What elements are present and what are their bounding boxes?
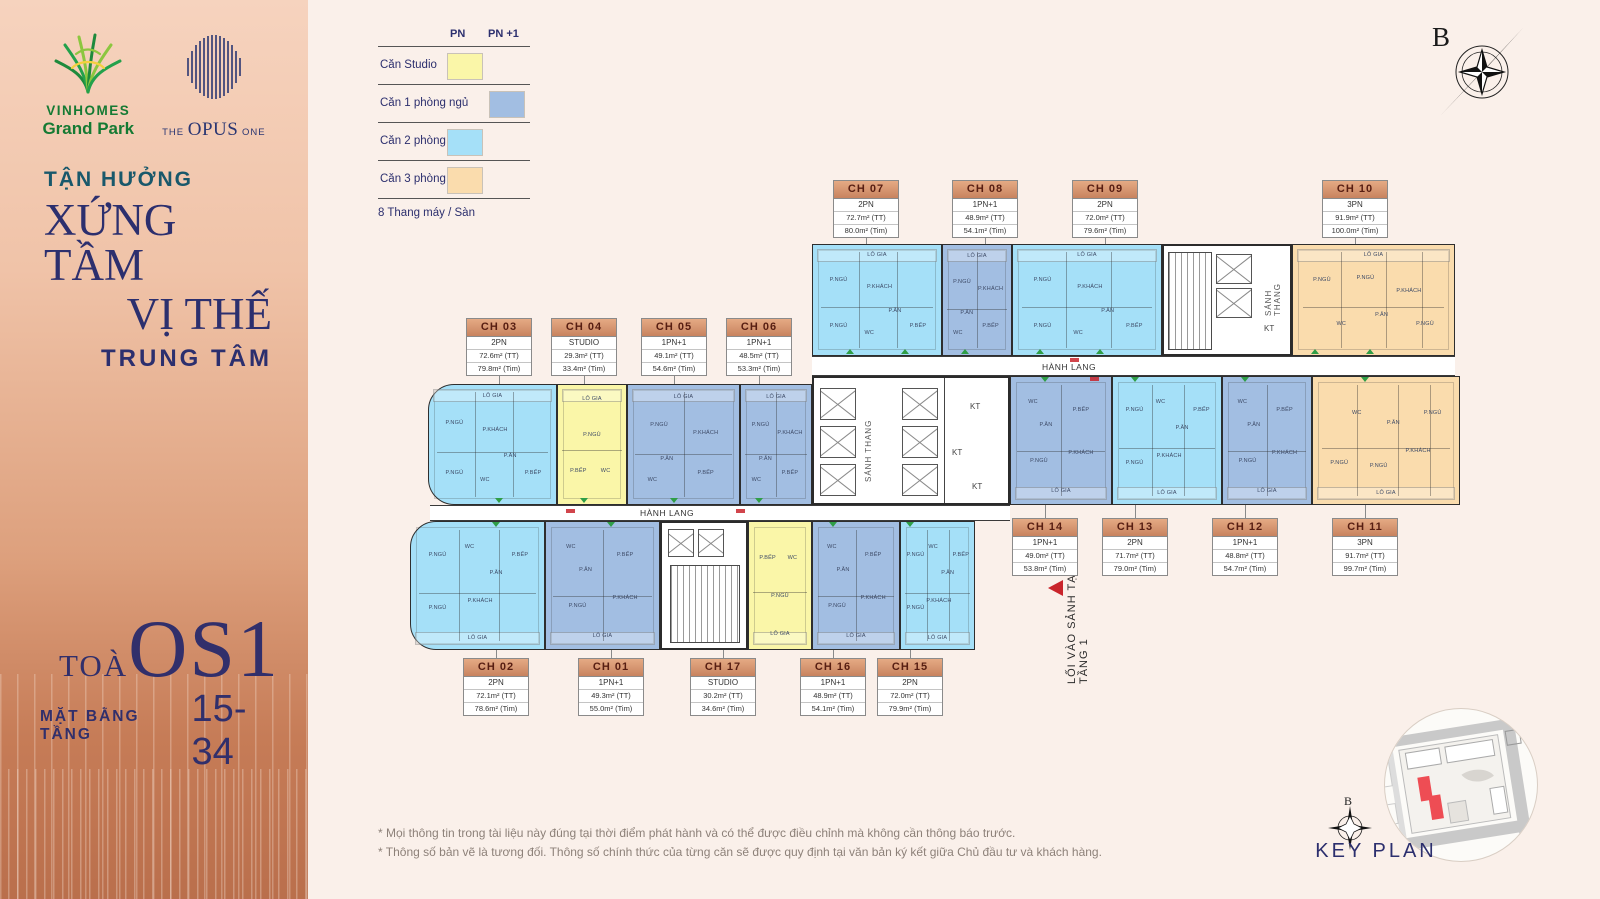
- unit-code: CH 07: [834, 181, 898, 199]
- unit-code: CH 03: [467, 319, 531, 337]
- unit-code: CH 02: [464, 659, 528, 677]
- key-plan-map: [1384, 708, 1538, 862]
- unit-area-tt: 91.9m² (TT): [1323, 212, 1387, 225]
- unit-code: CH 15: [878, 659, 942, 677]
- callout-leader-line: [833, 650, 834, 658]
- unit-type: 1PN+1: [1013, 537, 1077, 550]
- unit-callout-ch-03: CH 032PN72.6m² (TT)79.8m² (Tim): [466, 318, 532, 376]
- unit-area-tim: 79.9m² (Tim): [878, 703, 942, 715]
- unit-type: 1PN+1: [801, 677, 865, 690]
- unit-callout-ch-15: CH 152PN72.0m² (TT)79.9m² (Tim): [877, 658, 943, 716]
- unit-type: 1PN+1: [642, 337, 706, 350]
- unit-type: 2PN: [464, 677, 528, 690]
- unit-type: STUDIO: [691, 677, 755, 690]
- unit-area-tim: 54.6m² (Tim): [642, 363, 706, 375]
- unit-callout-ch-05: CH 051PN+149.1m² (TT)54.6m² (Tim): [641, 318, 707, 376]
- unit-type: 3PN: [1323, 199, 1387, 212]
- unit-callout-ch-01: CH 011PN+149.3m² (TT)55.0m² (Tim): [578, 658, 644, 716]
- callout-leader-line: [1135, 505, 1136, 518]
- unit-callout-ch-12: CH 121PN+148.8m² (TT)54.7m² (Tim): [1212, 518, 1278, 576]
- unit-area-tt: 30.2m² (TT): [691, 690, 755, 703]
- unit-callout-ch-17: CH 17STUDIO30.2m² (TT)34.6m² (Tim): [690, 658, 756, 716]
- unit-callout-ch-11: CH 113PN91.7m² (TT)99.7m² (Tim): [1332, 518, 1398, 576]
- unit-callout-ch-09: CH 092PN72.0m² (TT)79.6m² (Tim): [1072, 180, 1138, 238]
- unit-area-tim: 99.7m² (Tim): [1333, 563, 1397, 575]
- unit-code: CH 04: [552, 319, 616, 337]
- unit-area-tim: 34.6m² (Tim): [691, 703, 755, 715]
- disclaimer: * Mọi thông tin trong tài liệu này đúng …: [378, 824, 1358, 862]
- disclaimer-line-2: * Thông số bản vẽ là tương đối. Thông số…: [378, 843, 1358, 862]
- unit-area-tim: 53.3m² (Tim): [727, 363, 791, 375]
- callout-leader-line: [611, 650, 612, 658]
- unit-code: CH 14: [1013, 519, 1077, 537]
- unit-area-tim: 80.0m² (Tim): [834, 225, 898, 237]
- unit-type: 1PN+1: [1213, 537, 1277, 550]
- unit-area-tt: 48.9m² (TT): [801, 690, 865, 703]
- unit-area-tt: 49.3m² (TT): [579, 690, 643, 703]
- unit-code: CH 01: [579, 659, 643, 677]
- callout-leader-line: [1245, 505, 1246, 518]
- unit-area-tt: 72.6m² (TT): [467, 350, 531, 363]
- unit-area-tim: 53.8m² (Tim): [1013, 563, 1077, 575]
- unit-callout-ch-14: CH 141PN+149.0m² (TT)53.8m² (Tim): [1012, 518, 1078, 576]
- unit-area-tt: 48.8m² (TT): [1213, 550, 1277, 563]
- unit-code: CH 08: [953, 181, 1017, 199]
- unit-type: 1PN+1: [953, 199, 1017, 212]
- unit-area-tim: 79.6m² (Tim): [1073, 225, 1137, 237]
- unit-callout-ch-02: CH 022PN72.1m² (TT)78.6m² (Tim): [463, 658, 529, 716]
- unit-callout-ch-08: CH 081PN+148.9m² (TT)54.1m² (Tim): [952, 180, 1018, 238]
- unit-area-tt: 29.3m² (TT): [552, 350, 616, 363]
- unit-callout-ch-16: CH 161PN+148.9m² (TT)54.1m² (Tim): [800, 658, 866, 716]
- unit-type: 2PN: [1103, 537, 1167, 550]
- unit-type: 2PN: [834, 199, 898, 212]
- unit-callouts: CH 011PN+149.3m² (TT)55.0m² (Tim)CH 022P…: [0, 0, 1600, 899]
- unit-area-tt: 91.7m² (TT): [1333, 550, 1397, 563]
- unit-area-tim: 55.0m² (Tim): [579, 703, 643, 715]
- unit-area-tt: 72.1m² (TT): [464, 690, 528, 703]
- unit-code: CH 12: [1213, 519, 1277, 537]
- callout-leader-line: [1045, 505, 1046, 518]
- unit-area-tt: 71.7m² (TT): [1103, 550, 1167, 563]
- unit-code: CH 05: [642, 319, 706, 337]
- unit-type: 2PN: [1073, 199, 1137, 212]
- unit-area-tim: 79.8m² (Tim): [467, 363, 531, 375]
- disclaimer-line-1: * Mọi thông tin trong tài liệu này đúng …: [378, 824, 1358, 843]
- unit-area-tt: 48.5m² (TT): [727, 350, 791, 363]
- unit-type: 3PN: [1333, 537, 1397, 550]
- unit-area-tim: 54.1m² (Tim): [953, 225, 1017, 237]
- unit-type: 1PN+1: [727, 337, 791, 350]
- unit-area-tt: 72.0m² (TT): [878, 690, 942, 703]
- unit-callout-ch-04: CH 04STUDIO29.3m² (TT)33.4m² (Tim): [551, 318, 617, 376]
- unit-type: STUDIO: [552, 337, 616, 350]
- unit-code: CH 09: [1073, 181, 1137, 199]
- unit-area-tim: 54.1m² (Tim): [801, 703, 865, 715]
- callout-leader-line: [910, 650, 911, 658]
- callout-leader-line: [496, 650, 497, 658]
- unit-type: 2PN: [467, 337, 531, 350]
- unit-callout-ch-10: CH 103PN91.9m² (TT)100.0m² (Tim): [1322, 180, 1388, 238]
- unit-callout-ch-06: CH 061PN+148.5m² (TT)53.3m² (Tim): [726, 318, 792, 376]
- unit-code: CH 10: [1323, 181, 1387, 199]
- unit-area-tim: 78.6m² (Tim): [464, 703, 528, 715]
- unit-area-tt: 49.1m² (TT): [642, 350, 706, 363]
- unit-area-tt: 72.0m² (TT): [1073, 212, 1137, 225]
- unit-callout-ch-07: CH 072PN72.7m² (TT)80.0m² (Tim): [833, 180, 899, 238]
- unit-code: CH 16: [801, 659, 865, 677]
- unit-area-tt: 72.7m² (TT): [834, 212, 898, 225]
- unit-area-tim: 33.4m² (Tim): [552, 363, 616, 375]
- unit-area-tt: 48.9m² (TT): [953, 212, 1017, 225]
- brochure-page: VINHOMES Grand Park: [0, 0, 1600, 899]
- unit-area-tt: 49.0m² (TT): [1013, 550, 1077, 563]
- unit-area-tim: 54.7m² (Tim): [1213, 563, 1277, 575]
- unit-area-tim: 79.0m² (Tim): [1103, 563, 1167, 575]
- unit-area-tim: 100.0m² (Tim): [1323, 225, 1387, 237]
- unit-type: 2PN: [878, 677, 942, 690]
- unit-code: CH 06: [727, 319, 791, 337]
- unit-type: 1PN+1: [579, 677, 643, 690]
- unit-callout-ch-13: CH 132PN71.7m² (TT)79.0m² (Tim): [1102, 518, 1168, 576]
- callout-leader-line: [1365, 505, 1366, 518]
- callout-leader-line: [723, 650, 724, 658]
- unit-code: CH 17: [691, 659, 755, 677]
- unit-code: CH 11: [1333, 519, 1397, 537]
- unit-code: CH 13: [1103, 519, 1167, 537]
